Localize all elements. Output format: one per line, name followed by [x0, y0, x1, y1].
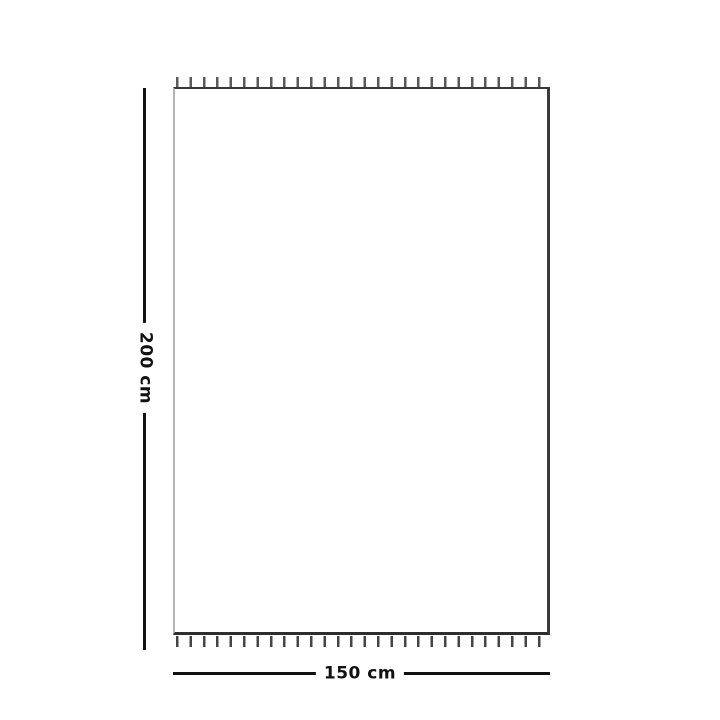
dimension-diagram-canvas: 200 cm 150 cm: [0, 0, 720, 720]
fringe-bottom: [176, 636, 548, 647]
width-dimension-label: 150 cm: [316, 664, 404, 685]
height-dimension-label: 200 cm: [135, 323, 156, 413]
blanket-rectangle: [173, 87, 550, 635]
fringe-top: [176, 77, 548, 87]
